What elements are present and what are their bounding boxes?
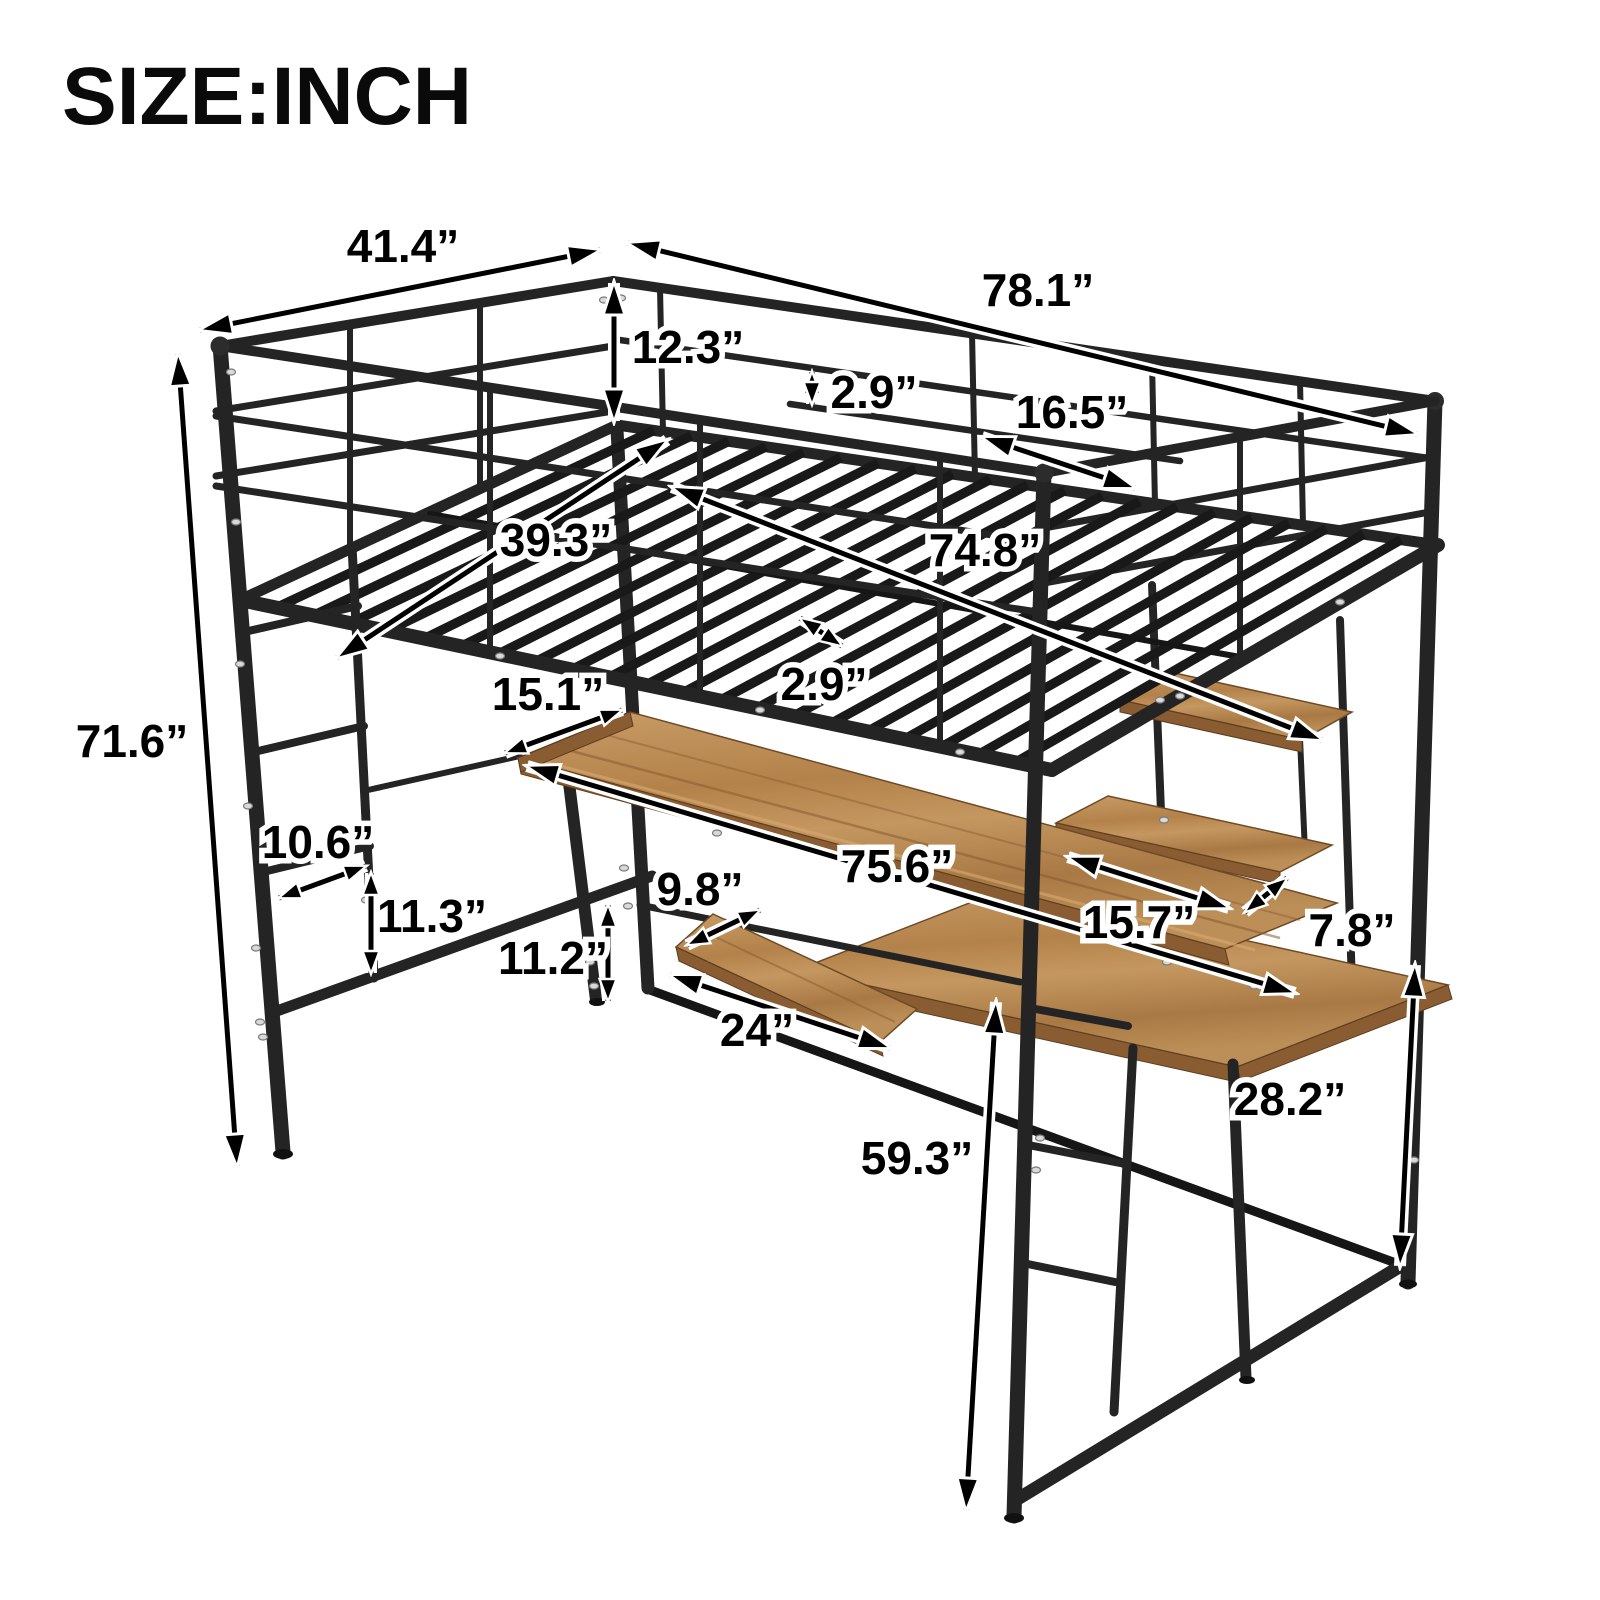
right-rear-post [1408,401,1435,1282]
dim-label: 12.3” [632,321,745,373]
ladder-rung [1018,1262,1115,1282]
dim-label: 75.6” [841,840,954,892]
dim-label: 11.3” [377,890,487,942]
dim-ladder-width: 10.6” [262,816,375,898]
dim-label: 39.3” [500,514,613,566]
post-foot [273,1149,293,1159]
post-foot [1399,1280,1417,1289]
foot-bottom-stretcher [1016,1264,1404,1500]
dim-label: 11.2” [498,932,608,984]
post-foot [1004,1513,1024,1523]
post-cap [211,337,230,356]
dim-label: 2.9” [781,658,868,710]
front-guardrail-bar [216,416,1044,543]
leg-foot [1239,1376,1255,1384]
dim-label: 24” [720,1004,794,1056]
diagram-canvas: 41.4” 78.1” 12.3” 2.9” 16.5” 74.8” [0,0,1600,1600]
post-cap [1035,464,1054,483]
dim-label: 41.4” [347,220,460,272]
dim-label: 15.7” [1083,896,1196,948]
right-ladder [1018,1008,1133,1412]
dim-label: 71.6” [76,715,189,767]
back-guardrail-baluster [972,333,975,478]
dim-label: 16.5” [1016,386,1129,438]
dim-label: 74.8” [929,524,1042,576]
dim-label: 59.3” [861,1132,974,1184]
loft-bed-dimension-diagram: 41.4” 78.1” 12.3” 2.9” 16.5” 74.8” [0,0,1600,1600]
dim-label: 7.8” [1309,904,1396,956]
dim-label: 2.9” [831,366,918,418]
ladder-rung [254,726,364,752]
dim-guardrail-height: 12.3” [614,283,744,421]
ladder-rail [1114,1048,1133,1412]
dim-label: 10.6” [262,816,375,868]
dim-label: 15.1” [492,668,605,720]
dim-label: 9.8” [657,863,744,915]
back-guardrail-baluster [1152,360,1155,505]
desk-left-support [368,756,520,790]
page-title: SIZE:INCH [62,51,472,142]
dim-label: 28.2” [1234,1073,1347,1125]
dim-label: 78.1” [982,264,1095,316]
